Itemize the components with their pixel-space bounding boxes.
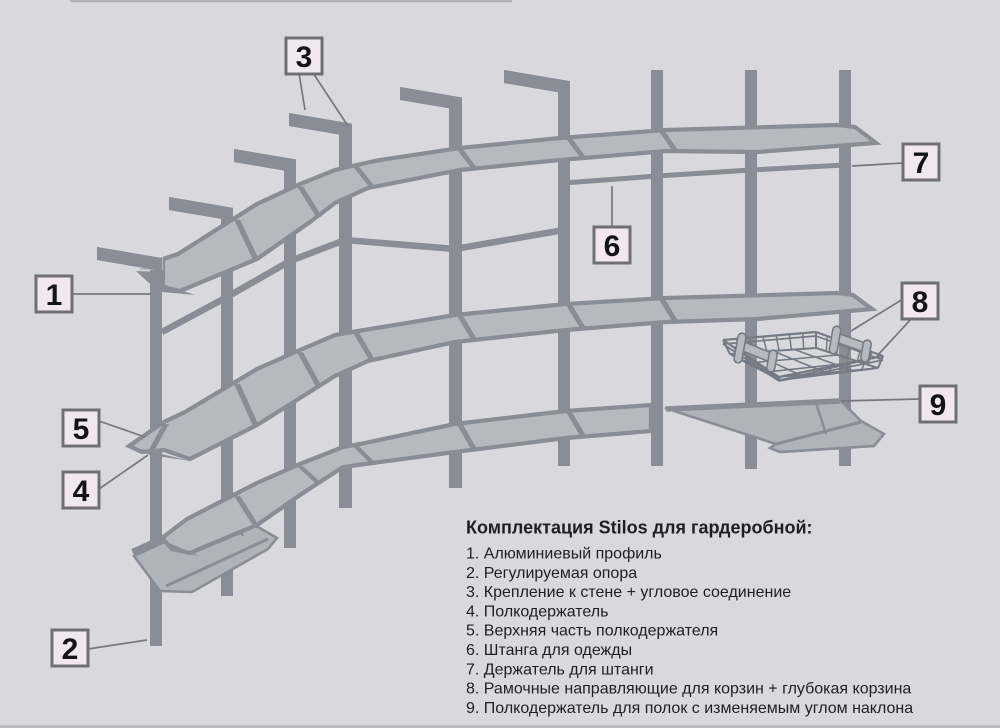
svg-text:9. Полкодержатель для полок с: 9. Полкодержатель для полок с изменяемым… <box>466 700 913 717</box>
svg-text:2: 2 <box>62 633 79 666</box>
svg-text:6: 6 <box>604 230 621 263</box>
svg-text:5: 5 <box>73 413 90 446</box>
svg-text:1: 1 <box>46 279 63 312</box>
svg-text:4: 4 <box>73 475 90 508</box>
svg-text:3: 3 <box>296 41 313 74</box>
svg-text:8. Рамочные направляющие для к: 8. Рамочные направляющие для корзин + гл… <box>466 681 911 698</box>
svg-text:2. Регулируемая опора: 2. Регулируемая опора <box>466 565 637 582</box>
svg-text:1. Алюминиевый профиль: 1. Алюминиевый профиль <box>466 546 662 563</box>
svg-text:7: 7 <box>913 147 930 180</box>
svg-text:5. Верхняя часть полкодержател: 5. Верхняя часть полкодержателя <box>466 623 718 640</box>
svg-text:8: 8 <box>912 286 929 319</box>
svg-text:9: 9 <box>930 389 947 422</box>
svg-text:3. Крепление к стене + угловое: 3. Крепление к стене + угловое соединени… <box>466 584 791 601</box>
svg-text:7. Держатель для штанги: 7. Держатель для штанги <box>466 661 654 678</box>
svg-text:4. Полкодержатель: 4. Полкодержатель <box>466 603 608 620</box>
svg-text:Комплектация Stilos для гардер: Комплектация Stilos для гардеробной: <box>466 518 813 538</box>
svg-text:6. Штанга для одежды: 6. Штанга для одежды <box>466 642 632 659</box>
